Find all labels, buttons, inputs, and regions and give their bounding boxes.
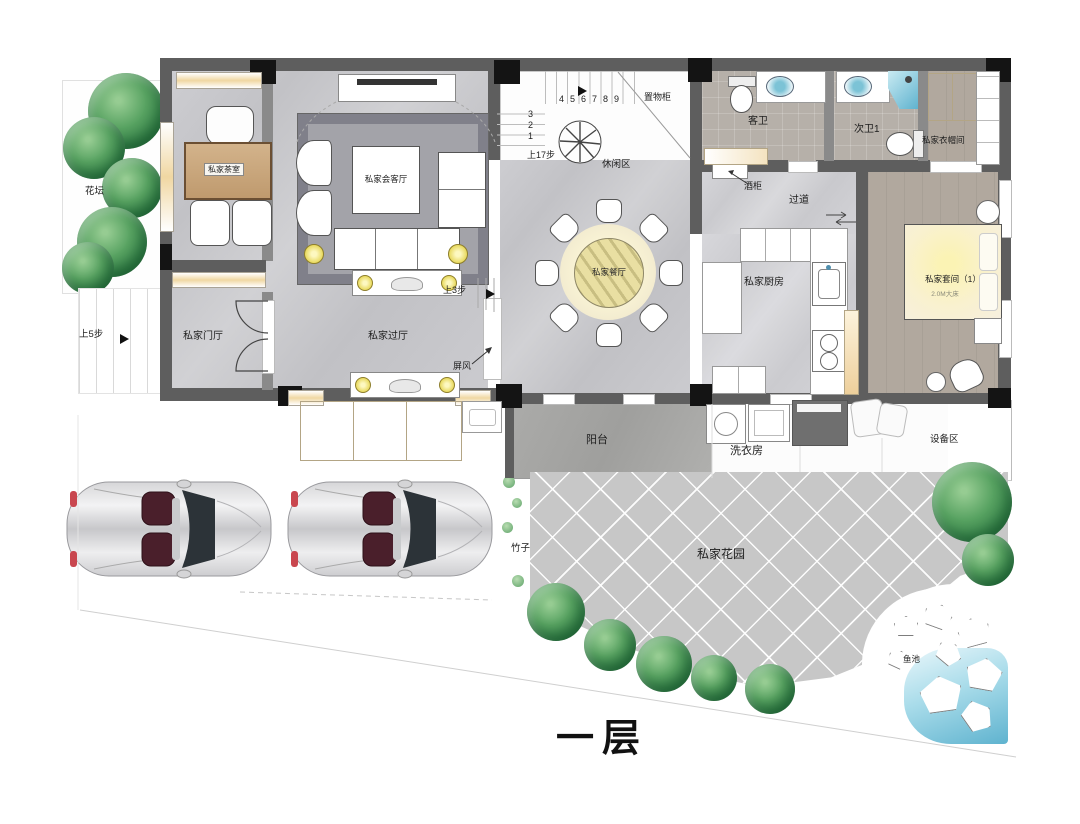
label-guest-bath: 客卫 (748, 116, 768, 128)
label-storage-cabinet: 置物柜 (644, 92, 671, 102)
up5-arrow (120, 334, 129, 344)
label-screen: 屏风 (453, 361, 471, 371)
label-foyer: 私家过厅 (368, 331, 408, 343)
label-fish-pond: 鱼池 (903, 655, 920, 665)
label-up17: 上17步 (527, 150, 555, 160)
floor-plan: 私家茶室 私家会客厅 4 5 6 7 8 9 3 2 1 私家餐厅 (0, 0, 1080, 824)
annotation-lines (0, 0, 1080, 824)
label-bamboo: 竹子 (511, 544, 530, 555)
label-up5: 上5步 (79, 330, 103, 341)
label-corridor: 过道 (789, 195, 809, 207)
label-cloakroom: 私家衣帽间 (922, 136, 965, 146)
label-balcony: 阳台 (586, 434, 608, 447)
label-flower-bed: 花坛 (85, 187, 104, 198)
label-kitchen: 私家厨房 (744, 277, 784, 289)
label-leisure: 休闲区 (602, 160, 631, 171)
label-up3: 上3步 (443, 285, 466, 295)
label-entry-hall: 私家门厅 (183, 331, 223, 343)
label-garden: 私家花园 (697, 548, 745, 562)
label-laundry: 洗衣房 (730, 445, 763, 458)
page-title: 一层 (556, 718, 648, 762)
up3-arrow (486, 289, 495, 299)
label-second-bath: 次卫1 (854, 124, 880, 136)
label-wine-cabinet: 酒柜 (744, 181, 762, 191)
label-equipment: 设备区 (930, 435, 959, 446)
